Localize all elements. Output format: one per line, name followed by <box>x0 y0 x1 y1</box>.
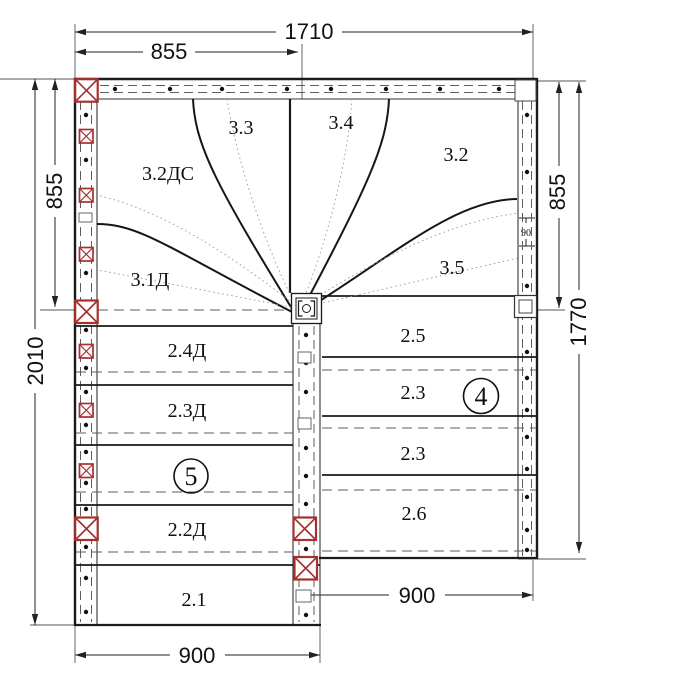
column-marker-small <box>80 464 94 478</box>
label-2-6: 2.6 <box>402 503 427 525</box>
column-marker-small <box>80 404 94 418</box>
label-3-2: 3.2 <box>444 144 469 166</box>
label-3-2ds: 3.2ДС <box>142 163 194 185</box>
column-marker-small <box>80 345 94 359</box>
callout-5: 5 <box>174 459 208 493</box>
label-2-3-a: 2.3 <box>401 382 426 404</box>
label-3-5: 3.5 <box>440 257 465 279</box>
strip-splice-symbol <box>298 352 311 363</box>
label-2-1: 2.1 <box>182 589 207 611</box>
strip-splice-symbol <box>298 418 311 429</box>
dim-left-total: 2010 <box>23 337 48 386</box>
dim-top-total: 1710 <box>285 19 334 44</box>
callout-4: 4 <box>464 379 499 414</box>
wall-splice-symbol <box>79 213 92 222</box>
label-2-3d: 2.3Д <box>168 400 207 422</box>
label-2-3-b: 2.3 <box>401 443 426 465</box>
dim-right-total: 1770 <box>566 298 591 347</box>
dim-right-upper: 855 <box>545 174 570 211</box>
label-2-2d: 2.2Д <box>168 519 207 541</box>
stair-plan-canvas: 1710 855 855 2010 855 1770 900 900 90 <box>0 0 690 694</box>
stair-plan-drawing: 1710 855 855 2010 855 1770 900 900 90 <box>0 0 690 694</box>
strip-splice-symbol <box>296 590 311 602</box>
label-3-4: 3.4 <box>329 112 354 134</box>
dim-bottom-left: 900 <box>179 643 216 668</box>
column-marker-large <box>75 79 98 102</box>
column-marker-large <box>75 518 98 541</box>
dim-top-left-half: 855 <box>151 39 188 64</box>
dim-bottom-right: 900 <box>399 583 436 608</box>
label-2-4d: 2.4Д <box>168 340 207 362</box>
callout-4-number: 4 <box>475 382 488 411</box>
label-3-1d: 3.1Д <box>131 269 170 291</box>
column-marker-large <box>75 301 98 324</box>
column-marker-small <box>80 248 94 262</box>
label-3-3: 3.3 <box>229 117 254 139</box>
label-2-5: 2.5 <box>401 325 426 347</box>
column-marker-large <box>294 518 317 541</box>
column-marker-large <box>295 557 318 580</box>
column-top-right <box>515 80 536 101</box>
dim-left-upper: 855 <box>42 173 67 210</box>
column-marker-small <box>80 130 94 144</box>
center-column-symbol <box>292 294 322 324</box>
callout-5-number: 5 <box>185 462 198 491</box>
column-right-junction <box>515 296 537 318</box>
column-marker-small <box>80 189 94 203</box>
